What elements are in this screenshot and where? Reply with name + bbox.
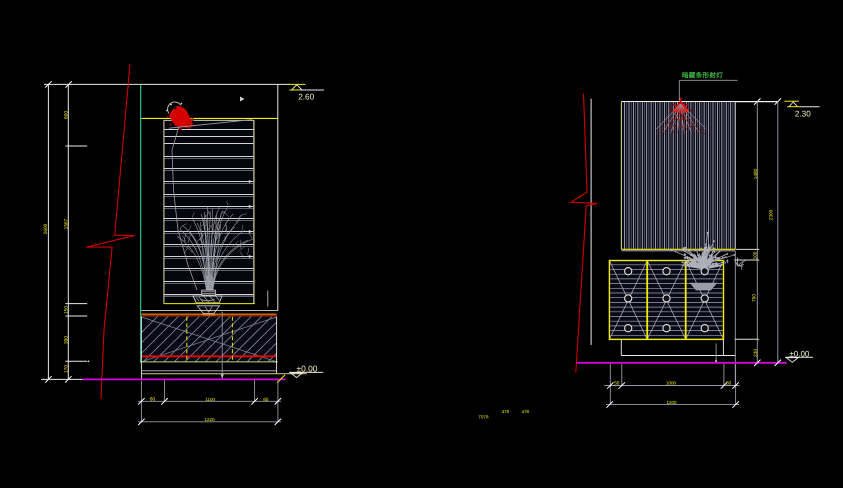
svg-text:暗藏条形射灯: 暗藏条形射灯 bbox=[682, 72, 723, 80]
svg-text:50: 50 bbox=[726, 381, 732, 386]
svg-text:150: 150 bbox=[64, 306, 70, 314]
svg-text:1200: 1200 bbox=[666, 400, 677, 405]
svg-text:2600: 2600 bbox=[43, 223, 49, 234]
svg-text:1567: 1567 bbox=[64, 218, 70, 229]
svg-text:60: 60 bbox=[150, 397, 156, 402]
svg-text:790: 790 bbox=[752, 294, 758, 302]
svg-text:60: 60 bbox=[263, 397, 269, 402]
svg-text:390: 390 bbox=[64, 336, 70, 344]
svg-text:2300: 2300 bbox=[769, 209, 775, 220]
svg-text:478: 478 bbox=[502, 409, 510, 414]
svg-text:100: 100 bbox=[753, 251, 758, 259]
svg-text:600: 600 bbox=[64, 111, 70, 119]
svg-text:478: 478 bbox=[522, 409, 530, 414]
svg-text:7078: 7078 bbox=[478, 415, 489, 420]
svg-text:1480: 1480 bbox=[753, 168, 759, 179]
svg-text:1220: 1220 bbox=[204, 417, 215, 422]
svg-text:1000: 1000 bbox=[666, 381, 677, 386]
svg-text:2.30: 2.30 bbox=[795, 110, 811, 119]
svg-text:170: 170 bbox=[64, 365, 70, 373]
svg-text:230: 230 bbox=[753, 349, 759, 357]
svg-text:2.60: 2.60 bbox=[298, 92, 314, 101]
svg-text:1100: 1100 bbox=[205, 397, 215, 402]
svg-text:50: 50 bbox=[614, 380, 620, 385]
